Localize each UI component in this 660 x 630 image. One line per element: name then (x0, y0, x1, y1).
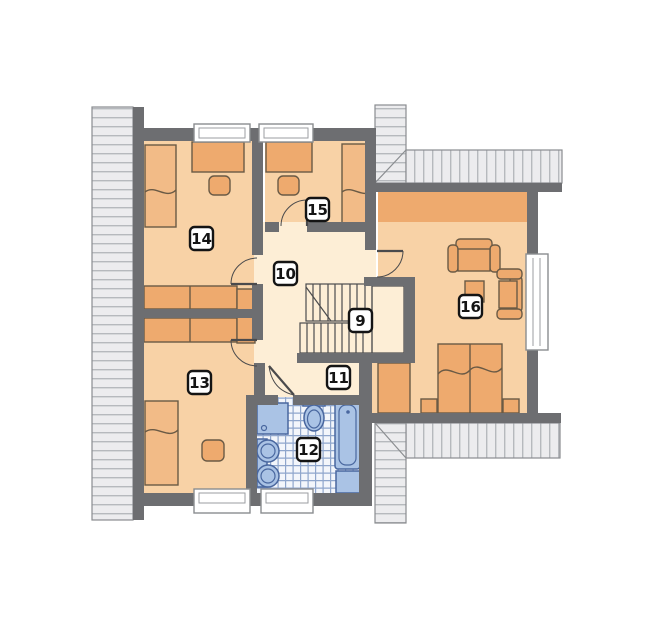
armchair (448, 239, 500, 272)
wall-bathroom-top-left (246, 395, 278, 405)
window-room14 (194, 124, 250, 142)
desk (192, 142, 244, 172)
armchair (497, 269, 522, 319)
chair (202, 440, 224, 461)
bed-single (145, 145, 176, 227)
label-bathroom: 12 (297, 438, 320, 461)
wall-room16-bottom (371, 413, 561, 423)
wall-bathroom-top-right (293, 395, 362, 405)
svg-text:14: 14 (191, 230, 212, 248)
bed-double (438, 344, 502, 413)
wall-stairs-bottom (297, 353, 415, 363)
label-master-bedroom: 16 (459, 295, 482, 318)
bathtub (335, 401, 360, 469)
label-staircase: 9 (349, 309, 372, 332)
bed-single (145, 401, 178, 485)
svg-text:11: 11 (328, 369, 349, 387)
wall-room13-hall (254, 363, 265, 396)
wall-room14-13 (144, 309, 253, 318)
svg-text:12: 12 (298, 441, 319, 459)
label-hall: 10 (274, 262, 297, 285)
svg-text:10: 10 (275, 265, 296, 283)
roof-eave-hatch-left (92, 107, 133, 520)
window-room16 (526, 254, 548, 350)
svg-text:13: 13 (189, 374, 210, 392)
roof-eave-hatch-bottom-right (375, 423, 560, 523)
wardrobe (378, 363, 410, 413)
label-bedroom-left: 13 (188, 371, 211, 394)
wall-room16-right-lower (527, 349, 538, 423)
wall-room14-15 (252, 128, 263, 255)
window-bathroom (261, 489, 313, 513)
wall-room15-bottom-a (265, 222, 279, 232)
chair (278, 176, 299, 195)
wall-room15-bottom-b (307, 222, 376, 232)
wall-room16-top (371, 183, 562, 192)
desk (266, 142, 312, 172)
washbasin (257, 465, 279, 487)
floor-plan-drawing: 9 10 11 12 13 14 15 16 (0, 0, 660, 630)
wall-stairs-top (364, 277, 415, 286)
svg-text:9: 9 (355, 312, 365, 330)
svg-text:16: 16 (460, 298, 481, 316)
wall-room14-hall (252, 284, 263, 340)
svg-text:15: 15 (307, 201, 328, 219)
wall-room15-right (365, 141, 376, 250)
washbasin (257, 440, 279, 462)
wall-bathroom-right (359, 395, 372, 506)
floor-plan-canvas: 9 10 11 12 13 14 15 16 (0, 0, 660, 630)
wall-room16-right-upper (527, 192, 538, 256)
room-16-knee-wall-band (378, 192, 527, 222)
chair (209, 176, 230, 195)
nightstand (503, 399, 519, 413)
roof-eave-hatch-top-right (375, 105, 562, 183)
wall-left (133, 107, 144, 520)
wall-stairs-right (404, 286, 415, 363)
label-bedroom-top-left: 14 (190, 227, 213, 250)
label-bedroom-top: 15 (306, 198, 329, 221)
window-room13 (194, 489, 250, 513)
window-room15 (259, 124, 313, 142)
nightstand (421, 399, 437, 413)
washer (336, 471, 360, 493)
label-corridor: 11 (327, 366, 350, 389)
door-opening-16 (365, 250, 376, 277)
